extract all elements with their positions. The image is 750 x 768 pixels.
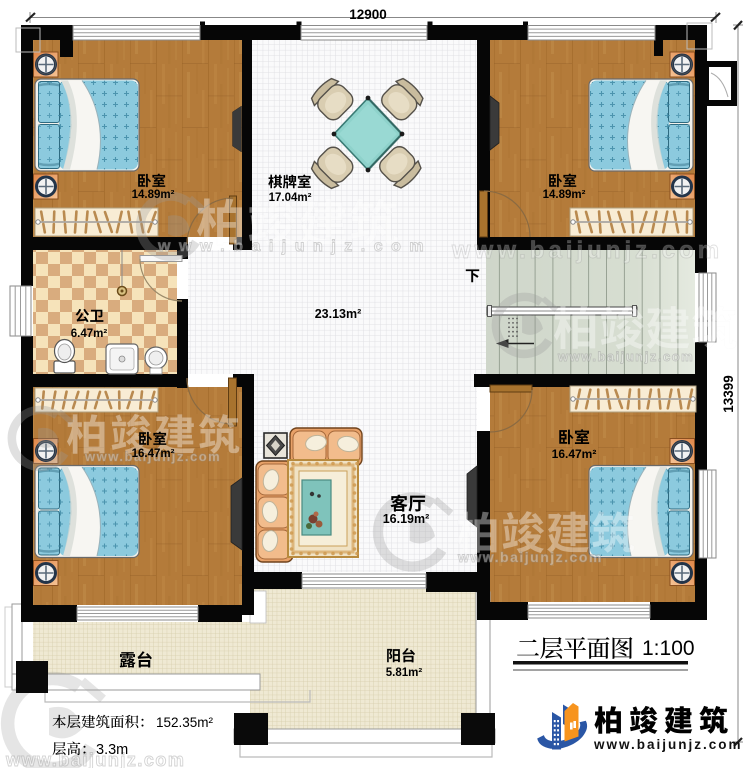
- svg-text:1:100: 1:100: [642, 637, 695, 660]
- svg-text:www.baijunjz.com: www.baijunjz.com: [451, 237, 723, 264]
- svg-text:3.3m: 3.3m: [96, 742, 128, 758]
- svg-text:13399: 13399: [721, 375, 736, 413]
- svg-text:5.81m²: 5.81m²: [386, 667, 423, 679]
- svg-text:23.13m²: 23.13m²: [315, 307, 362, 321]
- svg-text:16.47m²: 16.47m²: [552, 447, 597, 461]
- svg-text:www.baijunjz.com: www.baijunjz.com: [157, 238, 432, 255]
- svg-text:16.47m²: 16.47m²: [132, 448, 175, 460]
- svg-text:14.89m²: 14.89m²: [132, 189, 175, 201]
- svg-text:6.47m²: 6.47m²: [71, 328, 108, 340]
- svg-text:152.35m²: 152.35m²: [156, 715, 214, 730]
- svg-text:www.baijunjz.com: www.baijunjz.com: [557, 349, 694, 364]
- svg-text:14.89m²: 14.89m²: [543, 189, 586, 201]
- svg-text:16.19m²: 16.19m²: [383, 512, 430, 526]
- svg-text:17.04m²: 17.04m²: [269, 192, 312, 204]
- svg-text:www.baijunjz.com: www.baijunjz.com: [593, 737, 743, 752]
- svg-text:12900: 12900: [349, 7, 387, 22]
- svg-text:www.baijunjz.com: www.baijunjz.com: [457, 549, 603, 565]
